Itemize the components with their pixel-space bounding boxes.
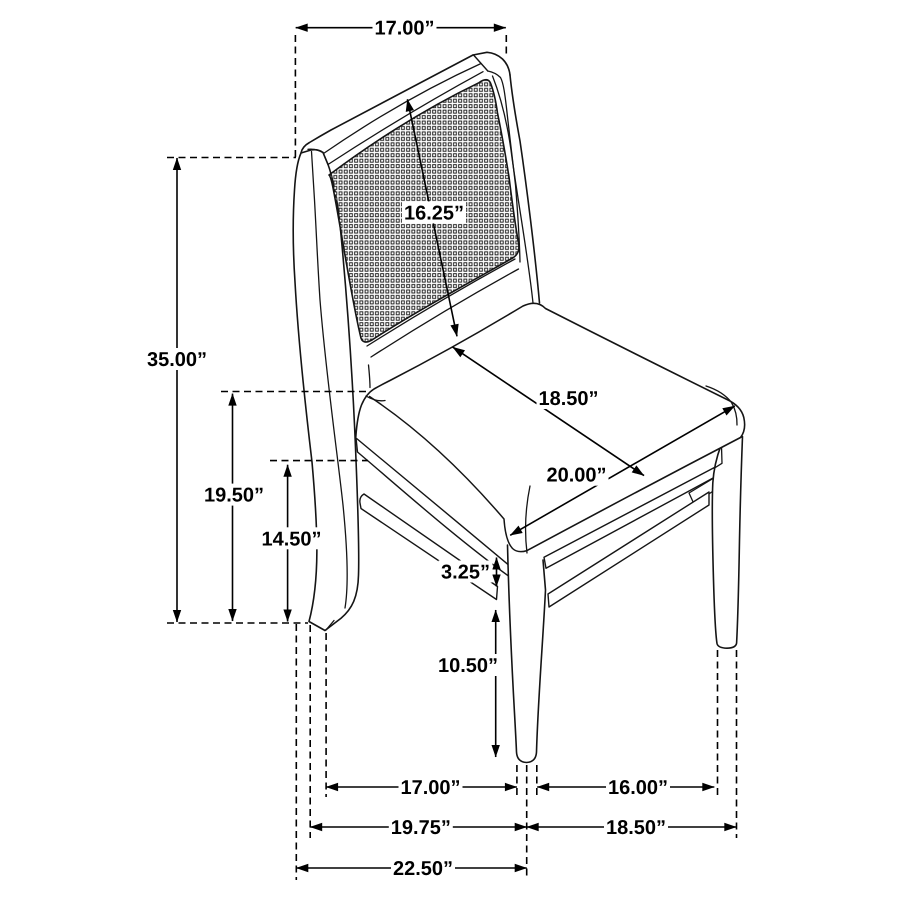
svg-text:19.75”: 19.75” xyxy=(391,817,451,839)
svg-text:14.50”: 14.50” xyxy=(261,528,321,550)
svg-text:35.00”: 35.00” xyxy=(147,349,207,371)
svg-text:18.50”: 18.50” xyxy=(538,388,598,410)
svg-text:17.00”: 17.00” xyxy=(400,777,460,799)
svg-text:22.50”: 22.50” xyxy=(393,858,453,880)
svg-text:16.00”: 16.00” xyxy=(608,777,668,799)
svg-text:17.00”: 17.00” xyxy=(374,18,434,40)
svg-text:20.00”: 20.00” xyxy=(546,465,606,487)
svg-text:3.25”: 3.25” xyxy=(441,562,490,584)
svg-text:16.25”: 16.25” xyxy=(404,202,464,224)
svg-text:18.50”: 18.50” xyxy=(606,817,666,839)
svg-text:19.50”: 19.50” xyxy=(204,485,264,507)
svg-text:10.50”: 10.50” xyxy=(438,655,498,677)
